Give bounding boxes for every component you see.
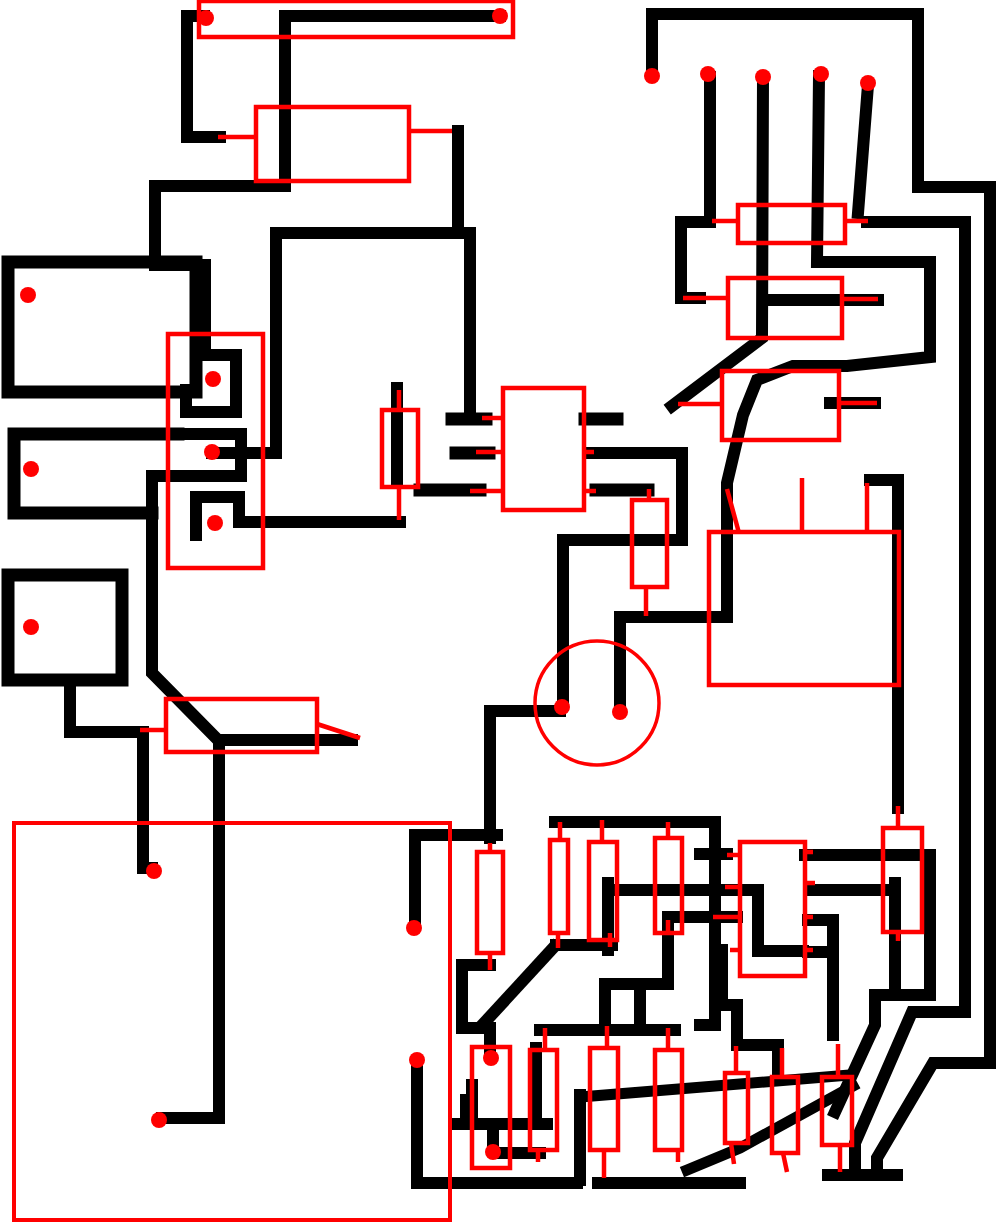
junction-dot (205, 371, 221, 387)
junction-dot (198, 10, 214, 26)
junction-dot (23, 619, 39, 635)
junction-dot (813, 66, 829, 82)
junction-dot (860, 75, 876, 91)
junction-dot (755, 69, 771, 85)
circuit-board-svg (0, 0, 1000, 1225)
junction-dot (409, 1052, 425, 1068)
junction-dot (151, 1112, 167, 1128)
junction-dot (554, 699, 570, 715)
junction-dot (612, 704, 628, 720)
junction-dot (700, 66, 716, 82)
junction-dot (644, 68, 660, 84)
lead-rd-bottom (731, 1143, 734, 1164)
junction-dot (492, 8, 508, 24)
junction-dot (485, 1144, 501, 1160)
circuit-diagram (0, 0, 1000, 1225)
junction-dot (20, 287, 36, 303)
junction-dot (23, 461, 39, 477)
junction-dot (406, 920, 422, 936)
junction-dot (204, 444, 220, 460)
junction-dot (207, 515, 223, 531)
junction-dot (483, 1050, 499, 1066)
junction-dot (146, 863, 162, 879)
